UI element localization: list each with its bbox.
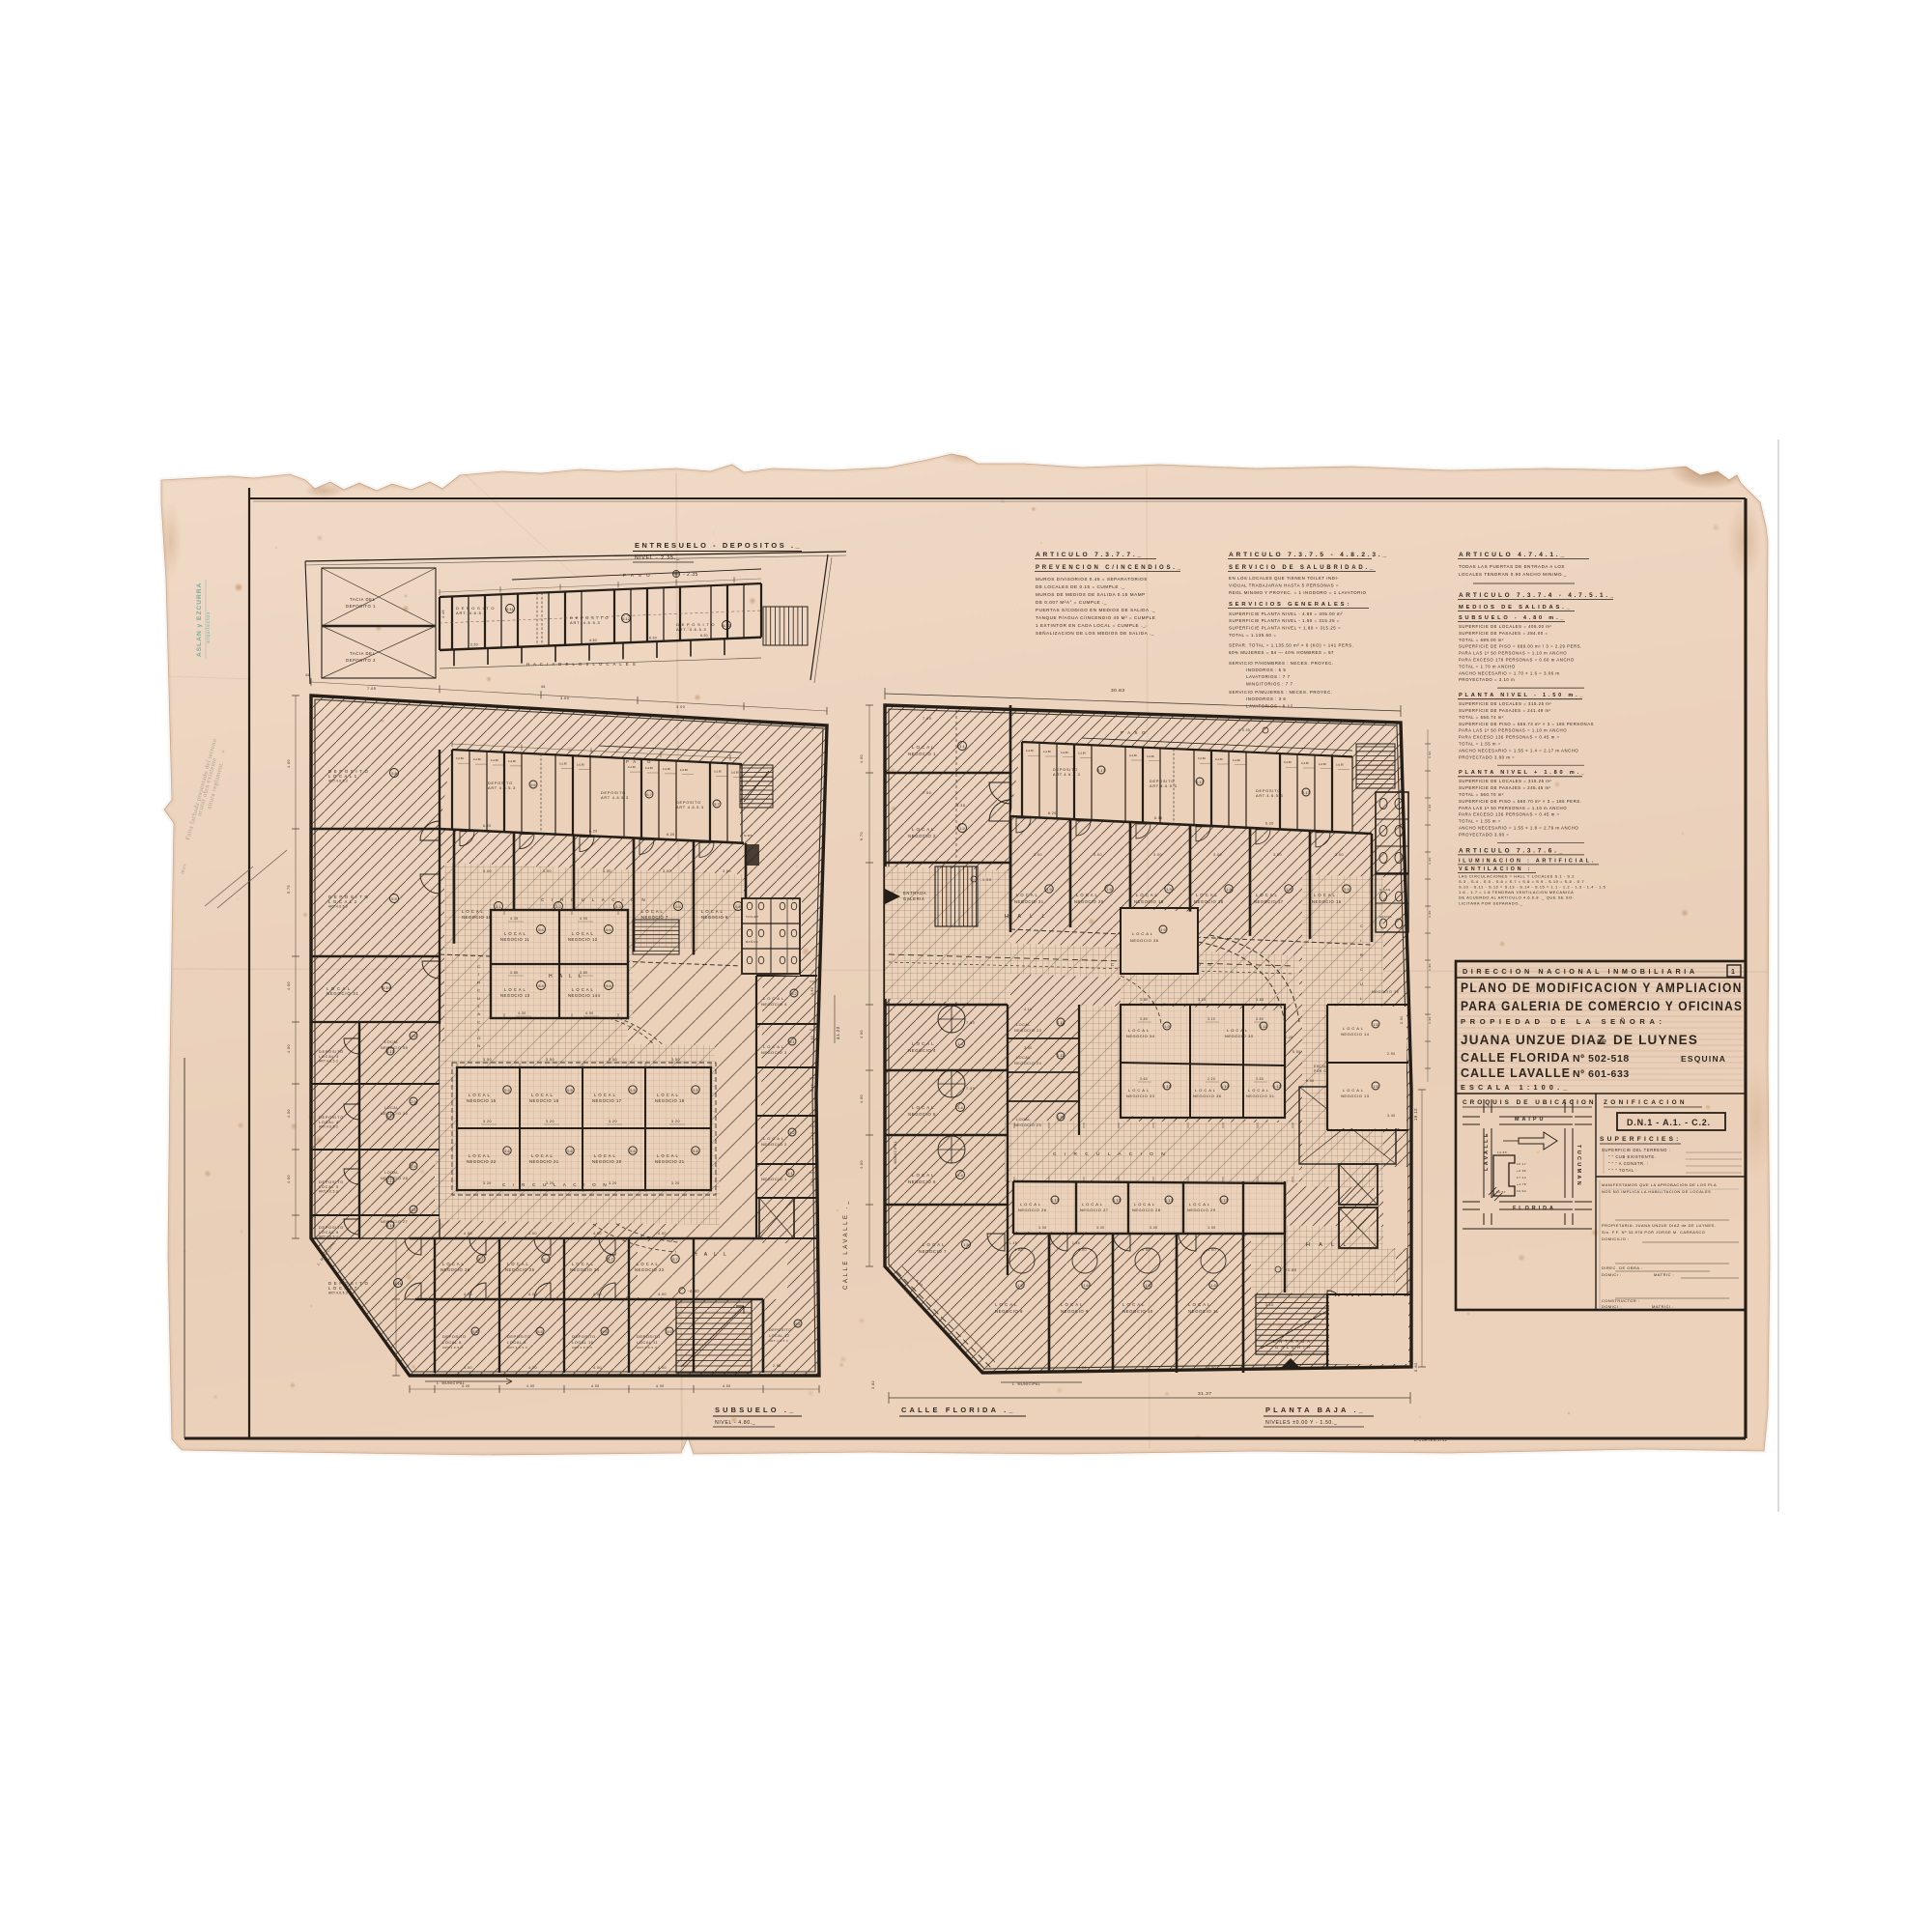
svg-text:60% MUJERES = 84 — 40% HOMB: 60% MUJERES = 84 — 40% HOMBRES = 57 <box>1229 650 1334 655</box>
svg-text:MUROS DE MEDIOS DE SALIDA 0: MUROS DE MEDIOS DE SALIDA 0.15 MAMP <box>1036 592 1146 597</box>
svg-text:4.00: 4.00 <box>528 1366 537 1370</box>
svg-text:PARA LAS 1ª 50 PERSONAS =: PARA LAS 1ª 50 PERSONAS = 1.10 m ANCHO <box>1459 806 1567 810</box>
svg-text:L O C A L: L O C A L <box>1134 1202 1155 1207</box>
svg-text:31.37: 31.37 <box>1198 1391 1212 1397</box>
svg-text:PROYECTADO 3.00 =: PROYECTADO 3.00 = <box>1459 832 1509 837</box>
svg-text:NEGOCIO 23: NEGOCIO 23 <box>635 1267 665 1272</box>
svg-text:L O C A L: L O C A L <box>641 909 663 914</box>
svg-text:5.7: 5.7 <box>672 1257 678 1262</box>
svg-text:NEGOCIO 31: NEGOCIO 31 <box>327 991 359 996</box>
svg-text:5.5: 5.5 <box>602 1329 608 1334</box>
svg-text:SUPERFICIE DEL TERRENO :: SUPERFICIE DEL TERRENO : <box>1602 1148 1670 1152</box>
svg-text:H A L L: H A L L <box>1005 914 1049 920</box>
svg-text:DEPOSITO: DEPOSITO <box>572 1334 596 1339</box>
svg-text:SERVICIOS GENERALES:: SERVICIOS GENERALES: <box>1229 602 1351 608</box>
svg-text:L O C A L: L O C A L <box>995 1302 1017 1307</box>
svg-text:2.9: 2.9 <box>411 1099 416 1104</box>
svg-text:5.82: 5.82 <box>1413 1362 1418 1372</box>
svg-text:R: R <box>1360 952 1363 957</box>
svg-text:5.7: 5.7 <box>646 792 652 797</box>
svg-text:DEPOSITO: DEPOSITO <box>769 1328 792 1332</box>
svg-text:NEGOCIO 17: NEGOCIO 17 <box>592 1098 622 1103</box>
svg-text:5.6: 5.6 <box>693 1149 698 1153</box>
svg-text:1x1.80: 1x1.80 <box>1043 750 1051 753</box>
svg-text:DEPOSITO: DEPOSITO <box>1053 768 1078 772</box>
svg-text:ART. 4.6.5.3: ART. 4.6.5.3 <box>456 611 487 615</box>
svg-text:NEGOCIO 23: NEGOCIO 23 <box>1014 1029 1041 1033</box>
svg-text:SUPERFICIE PLANTA NIVEL - 4.: SUPERFICIE PLANTA NIVEL - 4.80 = 405.00 … <box>1229 611 1343 616</box>
svg-text:4.00: 4.00 <box>591 1384 600 1388</box>
svg-text:1x1.80: 1x1.80 <box>731 771 739 775</box>
svg-text:ANCHO NECESARIO = 1.55 × 1.4: ANCHO NECESARIO = 1.55 × 1.4 = 2.17 m AN… <box>1459 748 1578 753</box>
svg-text:S.10 - S.11 - S.12 = S.13 - S.: S.10 - S.11 - S.12 = S.13 - S.14 - S.15 … <box>1459 885 1606 890</box>
svg-text:EN LOS LOCALES QUE TIENEN: EN LOS LOCALES QUE TIENEN TOILET INDI- <box>1229 576 1339 581</box>
svg-text:JUANA UNZUE DIAZ: JUANA UNZUE DIAZ <box>1461 1033 1606 1047</box>
svg-text:LOCAL: LOCAL <box>384 1214 399 1218</box>
svg-text:4.00: 4.00 <box>860 754 864 763</box>
svg-text:17.14: 17.14 <box>1517 1176 1526 1179</box>
svg-text:3.38: 3.38 <box>956 804 965 808</box>
svg-text:A: A <box>477 1011 480 1016</box>
svg-text:3.00: 3.00 <box>1150 1226 1158 1230</box>
svg-text:3.80: 3.80 <box>810 987 814 995</box>
svg-text:R: R <box>477 980 480 984</box>
svg-text:6.20: 6.20 <box>1048 811 1057 815</box>
svg-text:MATRICI :: MATRICI : <box>1652 1304 1674 1309</box>
svg-text:” ” ” TOTAL: ” ” ” TOTAL : <box>1608 1168 1637 1173</box>
svg-text:4.00: 4.00 <box>1207 1366 1216 1370</box>
svg-text:K.CAN: K.CAN <box>1379 888 1391 892</box>
svg-text:SUPERFICIE DE PASAJES = 2: SUPERFICIE DE PASAJES = 241.49 m² <box>1459 708 1551 713</box>
svg-text:L O C A L: L O C A L <box>462 909 483 914</box>
svg-text:1.12: 1.12 <box>1163 1084 1172 1089</box>
svg-text:SUPERFICIE DE LOCALES =: SUPERFICIE DE LOCALES = 405.00 m² <box>1459 624 1551 629</box>
svg-text:NEGOCIO 21: NEGOCIO 21 <box>1014 899 1044 904</box>
svg-text:de: de <box>1597 1037 1606 1046</box>
svg-text:DE ACUERDO AL ARTICULO 4.: DE ACUERDO AL ARTICULO 4.6.6.8 ._ QUE SE… <box>1459 895 1575 900</box>
svg-text:3.80: 3.80 <box>1140 998 1149 1002</box>
svg-text:ART.4.6.5.3: ART.4.6.5.3 <box>442 1346 463 1350</box>
svg-text:NEGOCIO 13: NEGOCIO 13 <box>1341 1094 1370 1098</box>
svg-text:5.2: 5.2 <box>791 991 797 996</box>
svg-text:4.00: 4.00 <box>1207 1248 1216 1252</box>
svg-text:5.5: 5.5 <box>537 1329 543 1334</box>
svg-text:5.7: 5.7 <box>608 1257 613 1262</box>
svg-text:5.50: 5.50 <box>1293 1050 1301 1054</box>
svg-text:L O C A L: L O C A L <box>912 745 934 750</box>
svg-text:PARA EXCESO 136 PERSONAS =: PARA EXCESO 136 PERSONAS = 0.45 m = <box>1459 812 1560 817</box>
svg-text:4.00: 4.00 <box>287 1175 291 1183</box>
svg-text:6.30: 6.30 <box>649 636 657 639</box>
svg-text:NEGOCIO 9: NEGOCIO 9 <box>1061 1309 1089 1314</box>
svg-text:3.00: 3.00 <box>1094 853 1102 857</box>
svg-text:H A C I A D E L O S L O: H A C I A D E L O S L O C A L E S <box>526 662 637 667</box>
svg-text:L O C A L: L O C A L <box>1189 1202 1210 1207</box>
svg-text:1.9: 1.9 <box>1046 887 1052 892</box>
svg-text:LAVALLE: LAVALLE <box>1484 1131 1490 1171</box>
svg-text:5.6: 5.6 <box>795 1321 801 1326</box>
svg-text:1.6: 1.6 <box>1083 1283 1089 1288</box>
svg-text:ART.4.6.5.3: ART.4.6.5.3 <box>769 1339 788 1343</box>
svg-text:5.16: 5.16 <box>394 1281 403 1286</box>
svg-text:NEGOCIO 20: NEGOCIO 20 <box>592 1159 622 1164</box>
svg-text:3.20: 3.20 <box>483 1120 492 1123</box>
svg-text:LOCAL 5: LOCAL 5 <box>319 1185 339 1189</box>
svg-text:NEGOCIO 3: NEGOCIO 3 <box>761 1050 787 1055</box>
svg-text:5.10: 5.10 <box>383 985 391 990</box>
svg-text:4.00: 4.00 <box>658 1366 667 1370</box>
svg-text:NEGOCIO 11: NEGOCIO 11 <box>1188 1309 1219 1314</box>
svg-text:3.20: 3.20 <box>671 1120 680 1123</box>
svg-text:LOCALES TENDRAN 0.90 ANCHO: LOCALES TENDRAN 0.90 ANCHO MINIMO._ <box>1459 572 1567 577</box>
svg-text:NEGOCIO 30: NEGOCIO 30 <box>1225 1034 1254 1038</box>
svg-text:NEGOCIO 36: NEGOCIO 36 <box>1193 1094 1222 1098</box>
svg-text:ART.4.6.5.3: ART.4.6.5.3 <box>319 1236 338 1239</box>
svg-text:C: C <box>1360 967 1363 972</box>
svg-text:5.4: 5.4 <box>606 927 611 932</box>
svg-text:3.00: 3.00 <box>1024 1046 1033 1050</box>
svg-text:DEPOSITO: DEPOSITO <box>319 1180 344 1184</box>
svg-text:ARTICULO 7.3.7.4 - 4.7.5.1._: ARTICULO 7.3.7.4 - 4.7.5.1._ <box>1459 592 1616 599</box>
svg-text:5.5: 5.5 <box>667 1329 672 1334</box>
svg-text:1x1.80: 1x1.80 <box>456 756 464 760</box>
svg-text:3.40: 3.40 <box>810 1132 814 1140</box>
svg-text:NEGOCIO 10: NEGOCIO 10 <box>1122 1309 1153 1314</box>
svg-text:L O C A L: L O C A L <box>1016 893 1037 897</box>
svg-text:3.40: 3.40 <box>810 1084 814 1092</box>
svg-text:DOMICILIO :: DOMICILIO : <box>1602 1236 1630 1241</box>
svg-text:7.80: 7.80 <box>966 1021 975 1025</box>
svg-text:L O C A L: L O C A L <box>1227 1028 1248 1033</box>
svg-text:4.00: 4.00 <box>464 1366 472 1370</box>
svg-text:NIVELES ±0.00 Y - 1.50._: NIVELES ±0.00 Y - 1.50._ <box>1265 1420 1337 1426</box>
svg-text:P A S O: P A S O <box>1121 730 1147 735</box>
svg-text:4.30: 4.30 <box>589 639 597 642</box>
svg-text:3.00: 3.00 <box>1034 853 1042 857</box>
svg-text:L O C A L: L O C A L <box>469 1093 490 1097</box>
svg-text:NEGOCIO 36: NEGOCIO 36 <box>1130 938 1159 943</box>
svg-text:3.90: 3.90 <box>1428 1016 1432 1024</box>
svg-text:PREVENCION C/INCENDIOS._: PREVENCION C/INCENDIOS._ <box>1036 565 1183 571</box>
svg-text:L O C A L: L O C A L <box>1314 893 1335 897</box>
svg-text:30.83: 30.83 <box>1111 688 1125 694</box>
svg-text:1.11: 1.11 <box>1057 1115 1065 1120</box>
svg-text:NEGOCIO 21: NEGOCIO 21 <box>529 1159 559 1164</box>
svg-text:L: L <box>1360 996 1363 1001</box>
svg-text:3.50: 3.50 <box>546 1058 554 1062</box>
svg-text:SUBSUELO - 4.80 m._: SUBSUELO - 4.80 m._ <box>1459 615 1566 621</box>
svg-text:5.17: 5.17 <box>1097 768 1106 773</box>
svg-text:4.30: 4.30 <box>510 917 519 921</box>
svg-text:O: O <box>477 1036 481 1040</box>
svg-text:C I R C U L A C I O N: C I R C U L A C I O N <box>502 1182 610 1187</box>
svg-text:NEGOCIO 26: NEGOCIO 26 <box>1018 1207 1047 1212</box>
svg-text:2.9: 2.9 <box>411 1164 416 1169</box>
svg-text:3.80: 3.80 <box>1256 998 1264 1002</box>
svg-text:1.11: 1.11 <box>1057 1020 1065 1025</box>
svg-text:DEPOSITO: DEPOSITO <box>319 1050 344 1054</box>
svg-text:PROYECTADO 3.00 m =: PROYECTADO 3.00 m = <box>1459 754 1515 759</box>
svg-text:DOMICI :: DOMICI : <box>1602 1272 1622 1277</box>
svg-text:ART 4.6.5.3: ART 4.6.5.3 <box>601 796 629 800</box>
svg-text:1.4: 1.4 <box>957 1105 963 1110</box>
svg-text:5.17: 5.17 <box>1302 790 1311 795</box>
svg-text:TOTAL = 1.55 m =: TOTAL = 1.55 m = <box>1459 742 1501 747</box>
svg-text:NEGOCIO 5: NEGOCIO 5 <box>908 1112 936 1117</box>
svg-text:SUPERFICIE DE PISO = 689.00 m: SUPERFICIE DE PISO = 689.00 m² / 3 = 2.2… <box>1459 644 1582 649</box>
svg-text:7.50: 7.50 <box>966 1087 975 1091</box>
svg-text:5.1: 5.1 <box>496 904 501 909</box>
svg-text:1x1.80: 1x1.80 <box>714 770 722 774</box>
svg-text:FLORIDA: FLORIDA <box>1513 1206 1556 1211</box>
svg-text:5.75: 5.75 <box>287 885 291 894</box>
svg-text:TOILET: TOILET <box>746 915 758 919</box>
svg-text:PLANO DE MODIFICACION Y AMPLIA: PLANO DE MODIFICACION Y AMPLIACION <box>1461 980 1743 995</box>
svg-text:MAIPU: MAIPU <box>1515 1117 1546 1122</box>
svg-text:1 EXTINTOR EN CADA LOCAL = C: 1 EXTINTOR EN CADA LOCAL = CUMPLE ._ <box>1036 623 1146 628</box>
svg-text:SUPERFICIE PLANTA NIVEL + 1.: SUPERFICIE PLANTA NIVEL + 1.80 = 315.25 … <box>1229 626 1341 631</box>
svg-text:- 2.35: - 2.35 <box>683 572 698 578</box>
svg-text:DEPOSITO: DEPOSITO <box>319 1226 344 1230</box>
svg-text:CALLE LAVALLE: CALLE LAVALLE <box>1461 1066 1571 1080</box>
svg-text:SERVICIO P/MUJERES : NEC: SERVICIO P/MUJERES : NECES. PROYEC. <box>1229 690 1333 695</box>
svg-text:D.CORTES-1742: D.CORTES-1742 <box>1414 1438 1447 1442</box>
svg-text:0.18: 0.18 <box>1285 1353 1293 1357</box>
svg-text:P A S O: P A S O <box>626 759 652 764</box>
svg-text:7.60: 7.60 <box>923 717 931 721</box>
svg-text:SUBSUELO ._: SUBSUELO ._ <box>715 1406 796 1414</box>
svg-text:PLANTA NIVEL - 1.50 m._: PLANTA NIVEL - 1.50 m._ <box>1459 693 1585 698</box>
svg-text:SERVICIO DE SALUBRIDAD._: SERVICIO DE SALUBRIDAD._ <box>1229 565 1376 571</box>
svg-text:L O C A L: L O C A L <box>1343 1088 1364 1093</box>
svg-text:4.00: 4.00 <box>1014 1366 1023 1370</box>
svg-text:5.8: 5.8 <box>391 771 397 776</box>
svg-text:N: N <box>477 1043 480 1048</box>
svg-text:6.30: 6.30 <box>700 634 708 638</box>
svg-text:L O C A L: L O C A L <box>657 1093 678 1097</box>
svg-text:NEGOCIO 16: NEGOCIO 16 <box>1312 899 1342 904</box>
svg-text:L O C A L: L O C A L <box>1132 931 1153 936</box>
svg-text:5.4: 5.4 <box>606 983 611 988</box>
svg-text:2.88: 2.88 <box>773 1364 781 1368</box>
svg-text:5.7: 5.7 <box>714 802 720 807</box>
svg-text:3.10: 3.10 <box>1265 1303 1274 1307</box>
svg-text:3.00: 3.00 <box>483 869 492 873</box>
svg-text:C: C <box>477 988 480 993</box>
svg-text:NEGOCIO 25: NEGOCIO 25 <box>505 1267 535 1272</box>
svg-text:SUPERFICIE DE PISO = 560.70 m²: SUPERFICIE DE PISO = 560.70 m² × 3 = 186… <box>1459 799 1581 804</box>
svg-text:LICITARA POR SEPARADO._: LICITARA POR SEPARADO._ <box>1459 900 1523 905</box>
svg-text:NEGOCIO 18: NEGOCIO 18 <box>655 1098 685 1103</box>
svg-text:H A L L: H A L L <box>694 1252 729 1258</box>
svg-text:ANCHO NECESARIO = 1.70 × 1.: ANCHO NECESARIO = 1.70 × 1.6 = 3.06 m <box>1459 670 1560 675</box>
svg-text:L O C A L: L O C A L <box>572 931 593 936</box>
svg-text:NEGOCIO 21: NEGOCIO 21 <box>655 1159 685 1164</box>
svg-text:TANQUE P/AGUA C/INCENDIO 40: TANQUE P/AGUA C/INCENDIO 40 M³ = CUMPLE <box>1036 615 1155 620</box>
svg-text:5.5: 5.5 <box>735 904 741 909</box>
svg-text:4.00: 4.00 <box>287 759 291 768</box>
svg-text:arquitectos: arquitectos <box>206 611 212 643</box>
svg-text:NEGOCIO 8: NEGOCIO 8 <box>995 1309 1023 1314</box>
svg-text:L O C A L: L O C A L <box>1076 893 1097 897</box>
svg-text:NEGOCIO 4: NEGOCIO 4 <box>761 1002 787 1007</box>
svg-text:L O C A L: L O C A L <box>594 1153 615 1158</box>
svg-text:L O C A L: L O C A L <box>531 1153 553 1158</box>
svg-text:S.3 - S.4 - S.5 - S.6 = S.7 =: S.3 - S.4 - S.5 - S.6 = S.7 = S.8 = S.9 … <box>1459 879 1584 884</box>
svg-text:ENTRADA: ENTRADA <box>903 891 926 895</box>
svg-text:GALERIA: GALERIA <box>903 896 924 901</box>
svg-text:3.60: 3.60 <box>810 1036 814 1043</box>
svg-text:LOCAL: LOCAL <box>1016 1056 1031 1060</box>
svg-text:1x1.80: 1x1.80 <box>508 759 516 763</box>
svg-text:L O C A L: L O C A L <box>1122 1302 1145 1307</box>
svg-text:5.13: 5.13 <box>723 623 731 628</box>
svg-text:1x1.80: 1x1.80 <box>1026 749 1034 753</box>
svg-text:NEGOCIO 18: NEGOCIO 18 <box>1194 899 1224 904</box>
svg-text:C I R C U L A C I O N: C I R C U L A C I O N <box>541 897 648 902</box>
svg-text:4.30: 4.30 <box>518 1011 526 1015</box>
svg-text:ART. 4.6.5.3: ART. 4.6.5.3 <box>570 620 601 625</box>
svg-text:I: I <box>478 972 480 977</box>
svg-text:TOTAL = 560.70 m²: TOTAL = 560.70 m² <box>1459 792 1504 797</box>
svg-text:5.5: 5.5 <box>693 1088 698 1093</box>
svg-text:8.50: 8.50 <box>1306 1079 1315 1083</box>
svg-text:5.2: 5.2 <box>555 904 561 909</box>
svg-text:MATRIC :: MATRIC : <box>1654 1272 1674 1277</box>
svg-text:5.5: 5.5 <box>630 1088 636 1093</box>
svg-text:ENTRESUELO - DEPOSITOS ._: ENTRESUELO - DEPOSITOS ._ <box>635 541 802 550</box>
svg-text:1: 1 <box>1731 969 1735 976</box>
svg-text:L O C A L: L O C A L <box>1128 1088 1150 1093</box>
svg-text:NEGOCIO 14: NEGOCIO 14 <box>1341 1032 1370 1037</box>
svg-text:ASLAN y EZCURRA: ASLAN y EZCURRA <box>196 582 203 657</box>
svg-text:5.5: 5.5 <box>567 1088 573 1093</box>
svg-text:DAMAS: DAMAS <box>1379 915 1392 919</box>
svg-text:L O C A L: L O C A L <box>1188 1302 1210 1307</box>
svg-text:2.90: 2.90 <box>1387 1052 1396 1056</box>
svg-text:3.80: 3.80 <box>1256 1017 1264 1021</box>
svg-text:NEGOCIO 17: NEGOCIO 17 <box>1254 899 1284 904</box>
svg-text:1x1.80: 1x1.80 <box>663 767 670 771</box>
svg-text:2.90: 2.90 <box>1400 1015 1404 1024</box>
svg-text:3.00: 3.00 <box>1273 853 1282 857</box>
svg-text:H A L L: H A L L <box>549 974 584 980</box>
svg-text:5.5: 5.5 <box>504 1088 510 1093</box>
svg-text:1x1.80: 1x1.80 <box>628 765 636 769</box>
svg-text:LOCAL: LOCAL <box>1016 1118 1031 1122</box>
svg-text:ILUMINACION : ARTIFICIAL.: ILUMINACION : ARTIFICIAL. <box>1459 858 1596 864</box>
svg-text:3.90: 3.90 <box>1428 857 1432 865</box>
svg-text:1.1: 1.1 <box>787 1171 793 1176</box>
svg-text:3.90: 3.90 <box>1428 910 1432 918</box>
svg-text:D.N.1 - A.1. - C.2.: D.N.1 - A.1. - C.2. <box>1627 1118 1711 1127</box>
svg-text:NEGOCIO 24: NEGOCIO 24 <box>570 1267 600 1272</box>
svg-text:TACIA DEL: TACIA DEL <box>350 651 376 656</box>
svg-text:I: I <box>478 1028 480 1033</box>
svg-text:NEGOCIO 31: NEGOCIO 31 <box>1246 1094 1275 1098</box>
svg-text:1.48: 1.48 <box>1072 1241 1080 1245</box>
svg-text:1.12: 1.12 <box>1221 1084 1230 1089</box>
svg-text:SUPERFICIE PLANTA NIVEL - 1.: SUPERFICIE PLANTA NIVEL - 1.50 = 315.25 … <box>1229 618 1340 623</box>
svg-text:ART.4.6.5.3: ART.4.6.5.3 <box>328 905 348 909</box>
svg-text:LAVATORIOS : 7: LAVATORIOS : 7 7 <box>1246 674 1291 679</box>
svg-text:PARA EXCESO 136 PERSONAS =: PARA EXCESO 136 PERSONAS = 0.45 m = <box>1459 735 1560 740</box>
svg-text:LOCAL 11: LOCAL 11 <box>637 1340 659 1345</box>
svg-text:TUCUMAN: TUCUMAN <box>1576 1145 1581 1187</box>
svg-text:14.65: 14.65 <box>1497 1151 1507 1154</box>
svg-text:3.20: 3.20 <box>671 1181 680 1185</box>
svg-text:L O C A L: L O C A L <box>504 987 526 992</box>
svg-text:ART.4.6.5.3: ART.4.6.5.3 <box>319 1190 338 1194</box>
svg-text:PROYECTADO = 3.10 m: PROYECTADO = 3.10 m <box>1459 677 1515 682</box>
svg-text:DEPOSITO: DEPOSITO <box>507 1334 531 1339</box>
svg-text:L O C A L: L O C A L <box>912 1041 934 1046</box>
svg-text:DIRECCION NACIONAL INMOBILIARI: DIRECCION NACIONAL INMOBILIARIA <box>1463 967 1698 976</box>
svg-text:5.12: 5.12 <box>622 616 631 621</box>
svg-text:L O C A L 2: L O C A L 2 <box>328 899 357 904</box>
svg-text:7.05: 7.05 <box>367 687 376 691</box>
svg-text:SEÑALIZACION DE LOS MEDIOS D: SEÑALIZACION DE LOS MEDIOS DE SALIDA ._ <box>1036 630 1154 636</box>
svg-text:NEGOCIO 10: NEGOCIO 10 <box>462 915 492 920</box>
svg-text:1.8: 1.8 <box>1373 1084 1378 1089</box>
svg-text:4.00: 4.00 <box>287 981 291 990</box>
svg-text:5.4: 5.4 <box>538 983 544 988</box>
svg-text:L O C A L: L O C A L <box>1020 1202 1041 1207</box>
svg-text:L O C A L: L O C A L <box>531 1093 553 1097</box>
svg-text:6.20: 6.20 <box>483 824 492 828</box>
svg-text:4.00: 4.00 <box>593 1366 602 1370</box>
svg-text:SERVICIO P/HOMBRES : NECE: SERVICIO P/HOMBRES : NECES. PROYEC. <box>1229 661 1334 666</box>
svg-text:ART 4.6.5.3: ART 4.6.5.3 <box>676 806 704 810</box>
svg-text:NEGOCIO 19: NEGOCIO 19 <box>1134 899 1164 904</box>
svg-text:NEGOCIO 29: NEGOCIO 29 <box>381 1112 408 1116</box>
svg-text:LOCAL 8: LOCAL 8 <box>442 1340 462 1345</box>
svg-text:U: U <box>477 996 480 1001</box>
svg-text:4.00: 4.00 <box>528 1232 537 1236</box>
svg-text:PARA EXCESO 179 PERSONAS =: PARA EXCESO 179 PERSONAS = 0.60 m ANCHO <box>1459 658 1575 663</box>
svg-text:L O C A L: L O C A L <box>572 987 593 992</box>
svg-text:4.00: 4.00 <box>1142 1366 1151 1370</box>
svg-text:4.00: 4.00 <box>658 1232 667 1236</box>
svg-text:NEGOCIO 7: NEGOCIO 7 <box>919 1249 947 1254</box>
svg-text:ART.4.6.5.3: ART.4.6.5.3 <box>1150 784 1178 788</box>
svg-text:7.50: 7.50 <box>923 791 931 795</box>
svg-text:1x1.80: 1x1.80 <box>577 763 584 767</box>
svg-text:TOTAL = 1.55 m =: TOTAL = 1.55 m = <box>1459 819 1501 824</box>
svg-text:C: C <box>477 1019 480 1024</box>
svg-text:NEGOCIO 25: NEGOCIO 25 <box>1014 1123 1041 1127</box>
svg-text:1.9: 1.9 <box>1160 927 1166 932</box>
svg-text:1.2: 1.2 <box>959 826 965 831</box>
svg-text:3.00: 3.00 <box>603 869 611 873</box>
svg-text:INODOROS : 5: INODOROS : 5 5 <box>1246 668 1286 672</box>
svg-text:DEPOSITO 1: DEPOSITO 1 <box>346 604 376 609</box>
svg-text:NEGOCIO 15: NEGOCIO 15 <box>467 1098 497 1103</box>
svg-text:L. MUNICIPAL: L. MUNICIPAL <box>894 1141 897 1169</box>
svg-text:5.7: 5.7 <box>478 1257 484 1262</box>
svg-text:LOCAL: LOCAL <box>1016 1023 1031 1027</box>
svg-text:3.82: 3.82 <box>871 1380 875 1389</box>
svg-text:L O C A L: L O C A L <box>657 1153 678 1158</box>
svg-text:REGL MINIMO Y PROYEC. = 1 INO: REGL MINIMO Y PROYEC. = 1 INODORO = 1 LA… <box>1229 590 1367 595</box>
svg-text:PLANTA NIVEL + 1.80 m._: PLANTA NIVEL + 1.80 m._ <box>1459 770 1587 776</box>
svg-text:ART.4.6.5.3: ART.4.6.5.3 <box>572 1346 592 1350</box>
svg-text:PROPIEDAD DE LA SEÑORA:: PROPIEDAD DE LA SEÑORA: <box>1461 1017 1666 1026</box>
svg-text:3.90: 3.90 <box>1428 751 1432 758</box>
svg-text:C I R C U L A C I O N: C I R C U L A C I O N <box>1053 1151 1168 1157</box>
svg-text:TOTAL = 556.74 m²: TOTAL = 556.74 m² <box>1459 715 1504 720</box>
svg-text:4.00: 4.00 <box>287 1109 291 1118</box>
